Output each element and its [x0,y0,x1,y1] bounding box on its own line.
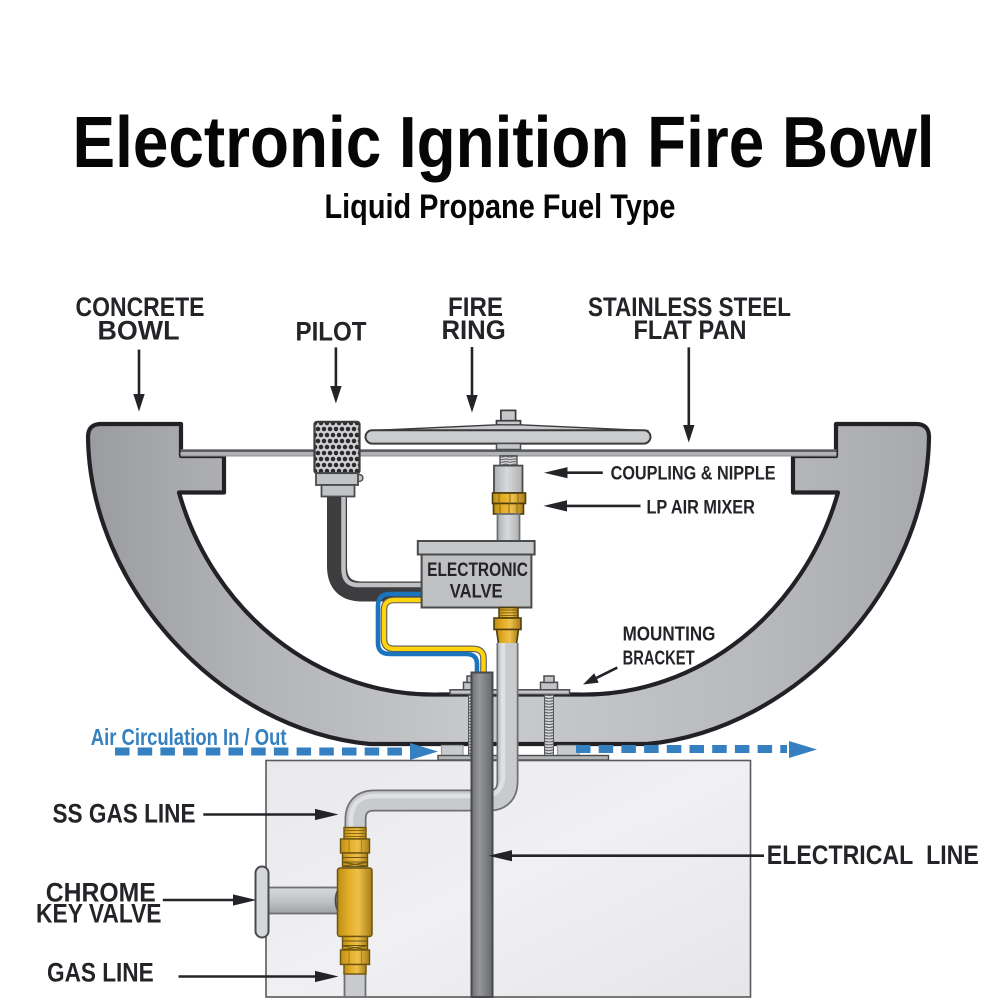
svg-text:LP AIR MIXER: LP AIR MIXER [647,497,755,519]
svg-text:COUPLING & NIPPLE: COUPLING & NIPPLE [611,463,776,485]
svg-text:MOUNTING: MOUNTING [623,624,716,646]
svg-text:RING: RING [441,315,505,345]
svg-text:Electronic Ignition Fire Bowl: Electronic Ignition Fire Bowl [73,103,935,183]
svg-text:PILOT: PILOT [296,317,367,347]
svg-text:KEY VALVE: KEY VALVE [36,898,162,928]
svg-text:FLAT PAN: FLAT PAN [634,315,747,345]
svg-text:ELECTRONIC: ELECTRONIC [427,559,528,581]
svg-text:Air Circulation In / Out: Air Circulation In / Out [91,724,287,750]
svg-text:BRACKET: BRACKET [623,648,695,670]
svg-text:Liquid Propane Fuel Type: Liquid Propane Fuel Type [325,188,676,226]
svg-text:BOWL: BOWL [98,316,180,346]
svg-text:VALVE: VALVE [450,580,503,602]
svg-text:GAS LINE: GAS LINE [47,957,154,987]
svg-text:SS GAS LINE: SS GAS LINE [53,799,196,829]
svg-text:ELECTRICAL LINE: ELECTRICAL LINE [767,840,979,870]
